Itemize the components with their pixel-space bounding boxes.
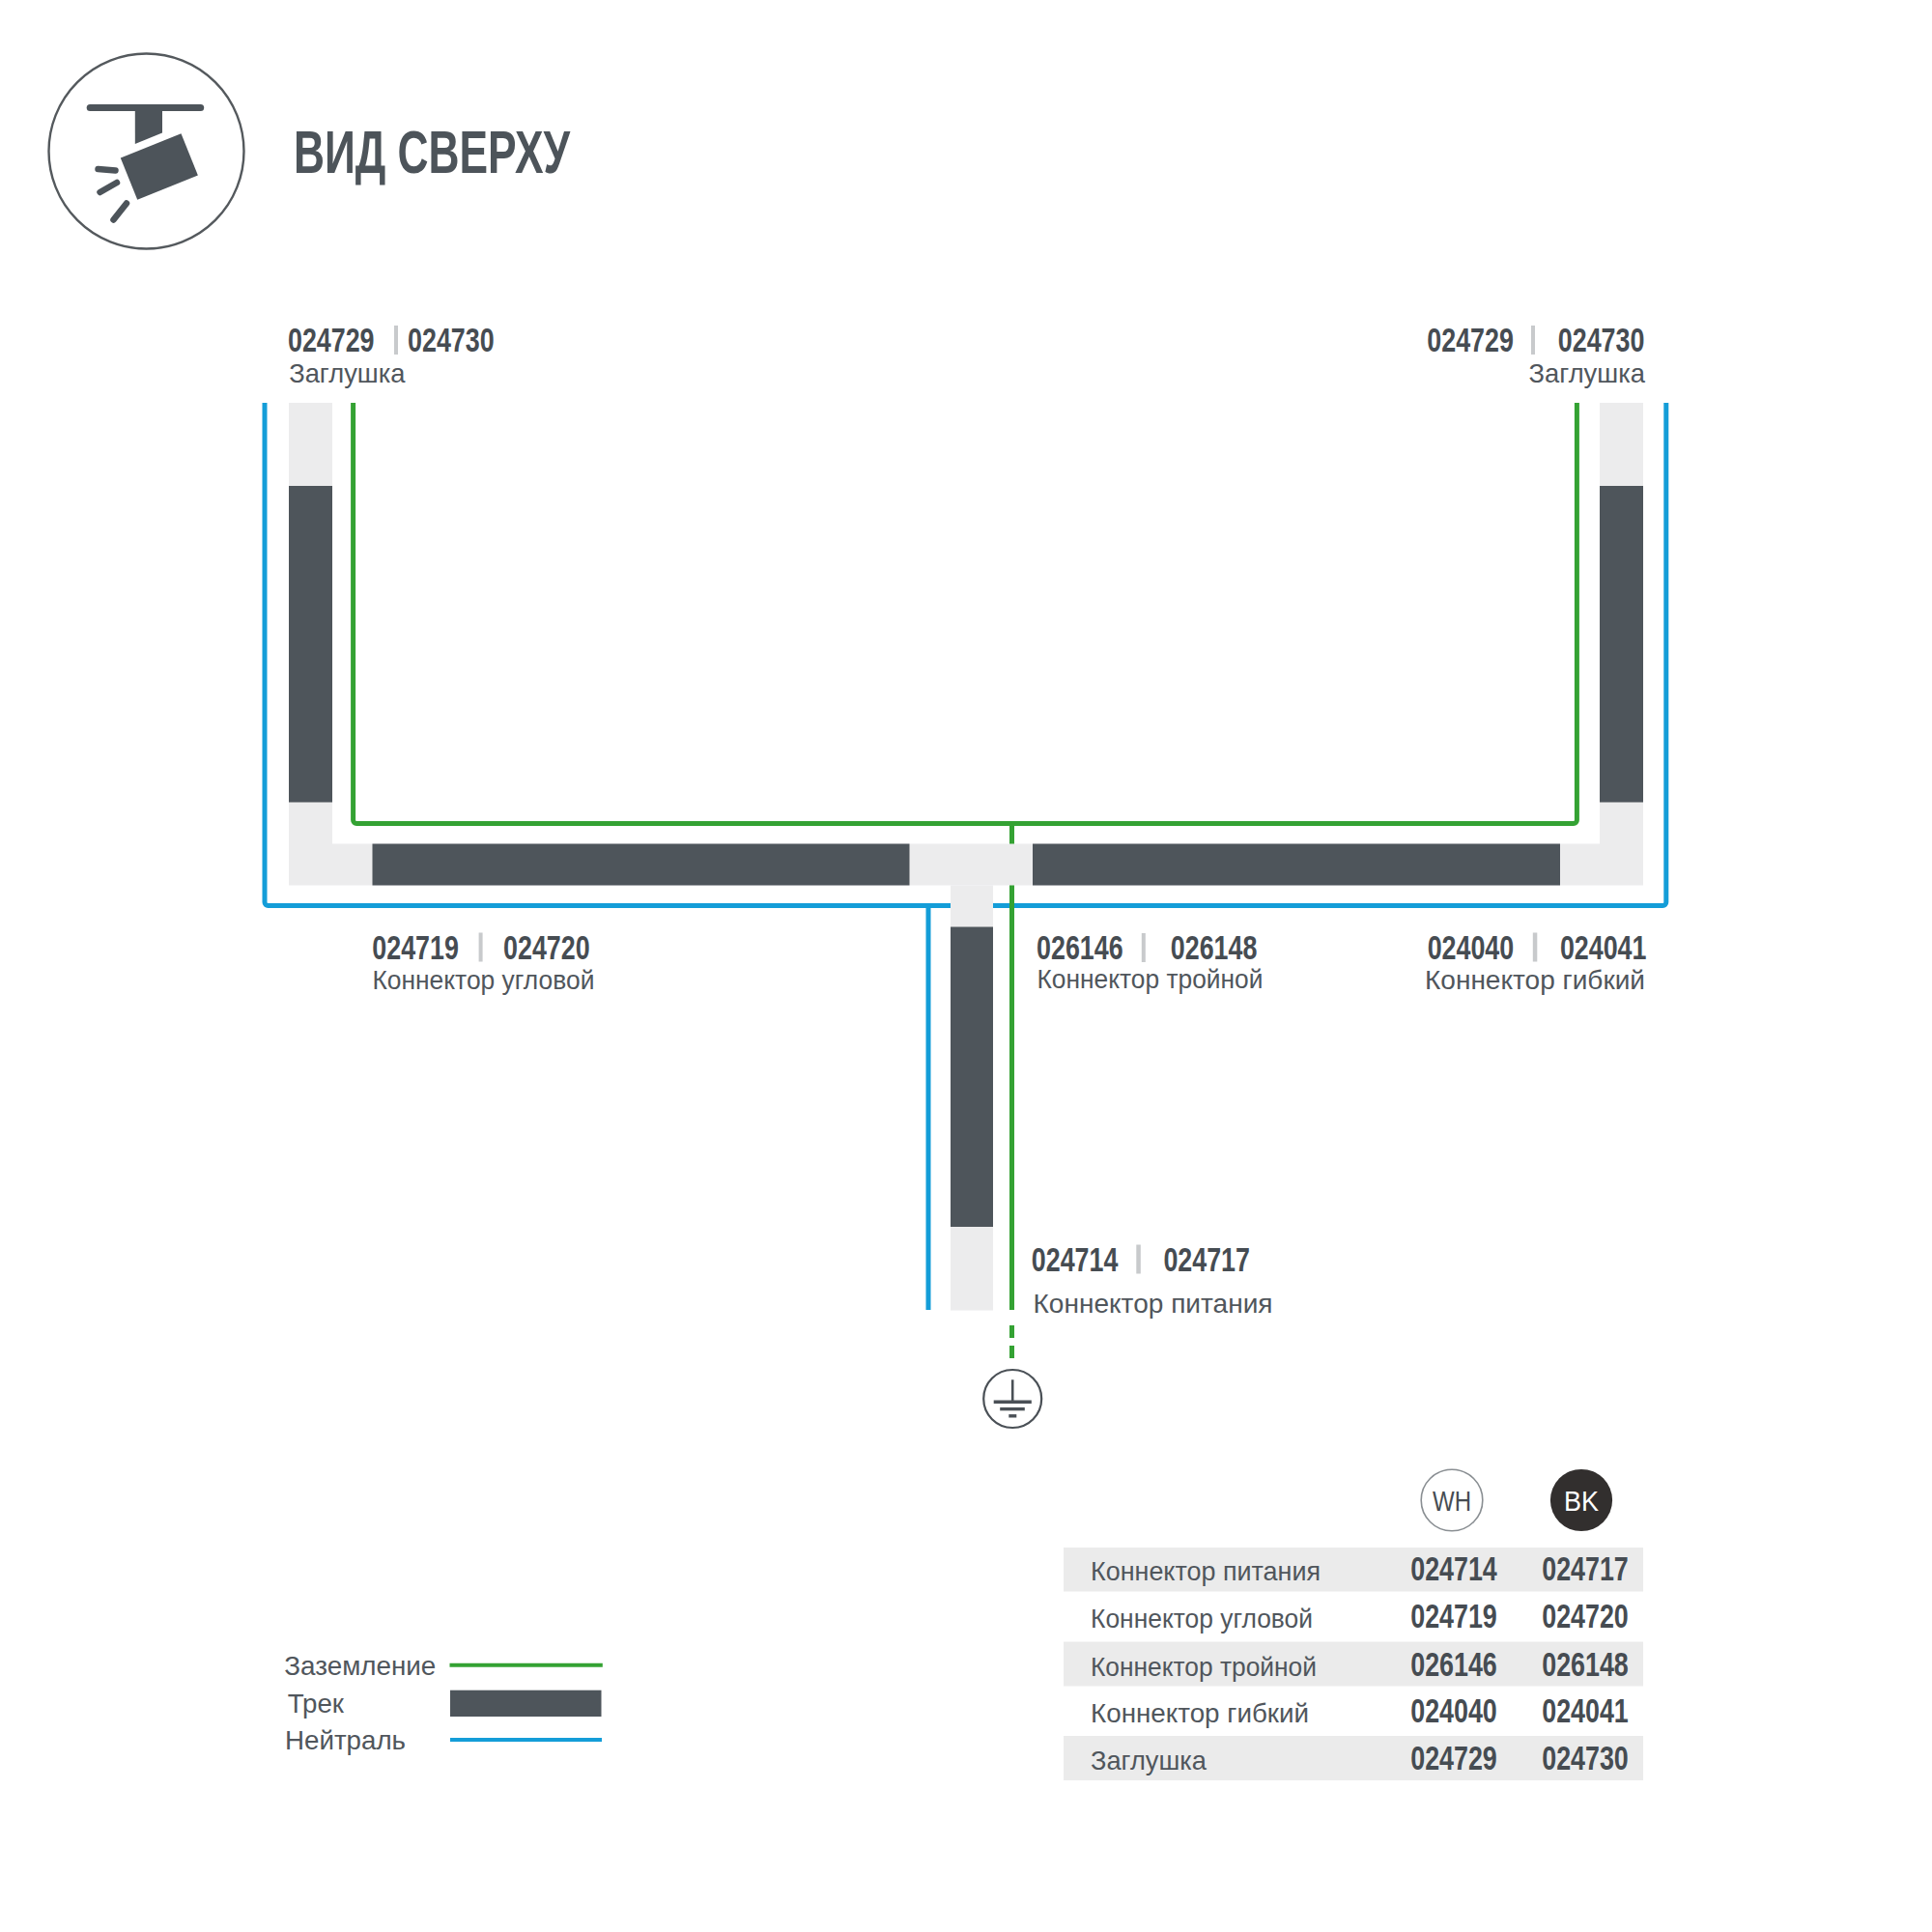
svg-text:024714: 024714 [1410,1549,1497,1587]
svg-text:Коннектор гибкий: Коннектор гибкий [1425,965,1645,995]
svg-text:024729: 024729 [288,321,375,358]
svg-text:024720: 024720 [1542,1597,1629,1634]
svg-text:Заглушка: Заглушка [1091,1746,1207,1776]
svg-text:ВИД СВЕРХУ: ВИД СВЕРХУ [294,118,571,185]
svg-text:024719: 024719 [372,928,459,966]
svg-text:Коннектор угловой: Коннектор угловой [372,965,594,995]
svg-text:024720: 024720 [503,928,590,966]
svg-text:024714: 024714 [1032,1240,1119,1278]
svg-text:Коннектор питания: Коннектор питания [1034,1289,1273,1319]
svg-text:024730: 024730 [1542,1739,1629,1776]
svg-text:026148: 026148 [1171,928,1258,966]
svg-text:026148: 026148 [1542,1645,1629,1683]
svg-text:WH: WH [1433,1485,1471,1517]
svg-text:024717: 024717 [1542,1549,1629,1587]
svg-text:024040: 024040 [1410,1691,1497,1729]
svg-text:Заглушка: Заглушка [289,358,406,388]
svg-text:024041: 024041 [1560,928,1647,966]
svg-text:024041: 024041 [1542,1691,1629,1729]
svg-text:024730: 024730 [408,321,495,358]
svg-text:024719: 024719 [1410,1597,1497,1634]
svg-text:Заглушка: Заглушка [1529,358,1646,388]
svg-text:Коннектор гибкий: Коннектор гибкий [1091,1698,1309,1728]
svg-text:026146: 026146 [1410,1645,1497,1683]
svg-text:BK: BK [1564,1485,1599,1517]
svg-text:024729: 024729 [1427,321,1514,358]
svg-text:024717: 024717 [1163,1240,1250,1278]
svg-text:Коннектор угловой: Коннектор угловой [1091,1604,1313,1634]
svg-text:Нейтраль: Нейтраль [285,1725,406,1755]
svg-text:026146: 026146 [1037,928,1123,966]
svg-text:024730: 024730 [1558,321,1645,358]
svg-text:024729: 024729 [1410,1739,1497,1776]
svg-text:Коннектор тройной: Коннектор тройной [1037,964,1264,994]
svg-text:024040: 024040 [1428,928,1515,966]
svg-text:Коннектор питания: Коннектор питания [1091,1556,1321,1586]
svg-text:Трек: Трек [288,1689,345,1719]
svg-text:Заземление: Заземление [284,1651,436,1681]
svg-text:Коннектор тройной: Коннектор тройной [1091,1652,1317,1682]
